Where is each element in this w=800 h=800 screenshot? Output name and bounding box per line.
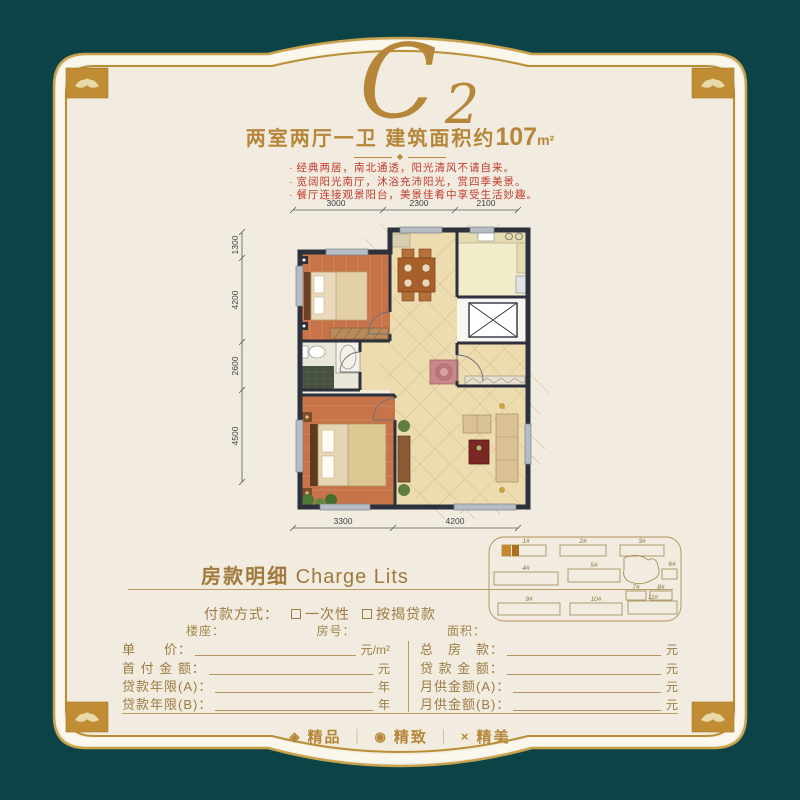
building-label: 楼座： [186, 622, 225, 639]
site-map: 1# 2# 3# 4# 5# 6# 7# 8# 9# 10# 11# [486, 530, 686, 626]
toilet [309, 346, 325, 358]
field-unit: 元 [666, 678, 678, 695]
chair [419, 249, 431, 258]
payment-label: 付款方式： [204, 604, 279, 624]
bullet-icon: · [289, 162, 294, 174]
unit-subtitle: 两室两厅一卫 建筑面积约107m² [100, 122, 700, 152]
bathroom [300, 341, 360, 390]
field-label: 月供金额(B)： [420, 694, 510, 713]
area-unit: m² [537, 132, 554, 148]
building-info-row: 楼座： 房号： 面积： [186, 622, 486, 639]
footer-word: 精品 [307, 726, 341, 747]
payment-option-mortgage: 按揭贷款 [376, 604, 436, 624]
sink [478, 232, 494, 241]
highlighted-unit [502, 545, 511, 556]
field-unit: 元/m² [361, 641, 390, 658]
footer-word: 精美 [476, 726, 510, 747]
fill-in-line[interactable] [215, 692, 373, 693]
footer-word: 精致 [394, 726, 428, 747]
bedroom-2 [300, 395, 395, 507]
checkbox-once[interactable] [291, 609, 301, 619]
form-row-unit-price: 单 价： 元/m² [122, 641, 390, 658]
checkbox-mortgage[interactable] [362, 609, 372, 619]
site-labels: 1# 2# 3# 4# 5# 6# 7# 8# 9# 10# 11# [522, 538, 676, 603]
form-row-total-price: 总 房 款： 元 [420, 641, 678, 658]
hall-rug [430, 360, 458, 384]
coffee-table [469, 440, 489, 464]
field-label: 贷 款 金 额： [420, 658, 504, 677]
dim-top-2: 2300 [410, 198, 429, 208]
field-label: 单 价： [122, 639, 192, 658]
plant [398, 484, 410, 496]
corner-ornament-top-left [66, 68, 108, 98]
bedroom-1 [300, 252, 390, 341]
payment-option-once: 一次性 [305, 604, 350, 624]
sideboard [392, 234, 410, 247]
dim-bottom-1: 3300 [334, 516, 353, 526]
field-label: 贷款年限(A)： [122, 676, 212, 695]
fill-in-line[interactable] [507, 674, 661, 675]
site-label: 3# [638, 538, 646, 545]
fill-in-line[interactable] [215, 710, 373, 711]
form-row-monthly-b: 月供金额(B)： 元 [420, 696, 678, 713]
form-row-monthly-a: 月供金额(A)： 元 [420, 678, 678, 695]
chair [402, 249, 414, 258]
corner-ornament-bottom-left [66, 702, 108, 732]
site-label: 11# [648, 594, 659, 601]
subtitle-text: 两室两厅一卫 建筑面积约 [246, 128, 496, 150]
dim-left-1: 1300 [230, 235, 240, 254]
fill-in-line[interactable] [513, 710, 661, 711]
form-row-loan-years-b: 贷款年限(B)： 年 [122, 696, 390, 713]
feature-item: ·宽阔阳光南厅，沐浴充沛阳光，赏四季美景。 [289, 176, 619, 190]
feature-text: 宽阔阳光南厅，沐浴充沛阳光，赏四季美景。 [297, 176, 527, 188]
site-label: 5# [590, 562, 598, 569]
area-label: 面积： [447, 622, 486, 639]
feature-item: ·经典两居，南北通透，阳光清风不请自来。 [289, 162, 619, 176]
fill-in-line[interactable] [195, 655, 356, 656]
title-rule [128, 589, 673, 590]
corner-ornament-top-right [692, 68, 734, 98]
site-label: 9# [525, 596, 533, 603]
field-label: 月供金额(A)： [420, 676, 510, 695]
charge-title-en: Charge Lits [289, 566, 409, 588]
fill-in-line[interactable] [513, 692, 661, 693]
form-row-down-payment: 首 付 金 额： 元 [122, 660, 390, 677]
form-row-loan-years-a: 贷款年限(A)： 年 [122, 678, 390, 695]
chair [402, 292, 414, 301]
field-unit: 元 [666, 660, 678, 677]
bed-headboard [304, 272, 311, 320]
footer-separator: ｜ [350, 726, 367, 747]
entry-closet [465, 376, 528, 385]
diamond-icon: ◆ [397, 153, 403, 161]
area-number: 107 [495, 123, 537, 151]
footer-slogan: ◈ 精品 ｜ ◉ 精致 ｜ × 精美 [250, 726, 550, 747]
wardrobe [330, 328, 388, 339]
field-label: 首 付 金 额： [122, 658, 206, 677]
highlighted-unit [512, 545, 519, 556]
cross-icon: × [461, 729, 469, 744]
site-label: 1# [522, 538, 530, 545]
field-label: 贷款年限(B)： [122, 694, 212, 713]
chair [419, 292, 431, 301]
site-label: 6# [668, 561, 676, 568]
plant [398, 420, 410, 432]
site-label: 4# [522, 565, 530, 572]
divider-line-left [354, 157, 392, 158]
feature-text: 经典两居，南北通透，阳光清风不请自来。 [297, 162, 516, 174]
dim-left-3: 2600 [230, 356, 240, 375]
elevator [457, 297, 528, 343]
room-label: 房号： [316, 622, 355, 639]
bullet-icon: · [289, 176, 294, 188]
site-buildings [494, 545, 677, 615]
charge-section-title: 房款明细 Charge Lits [150, 560, 460, 589]
field-unit: 元 [666, 641, 678, 658]
footer-separator: ｜ [436, 726, 453, 747]
bed-headboard [310, 424, 318, 486]
clubhouse [624, 555, 660, 583]
dim-left-2: 4200 [230, 290, 240, 309]
site-label: 10# [591, 596, 602, 603]
form-row-loan-amount: 贷 款 金 额： 元 [420, 660, 678, 677]
charge-title-cn: 房款明细 [201, 566, 289, 588]
lamp [499, 487, 505, 493]
divider-line-right [408, 157, 446, 158]
field-unit: 年 [378, 678, 390, 695]
field-unit: 年 [378, 696, 390, 713]
site-label: 2# [578, 538, 587, 545]
field-unit: 元 [378, 660, 390, 677]
form-column-divider [408, 641, 409, 712]
fill-in-line[interactable] [209, 674, 373, 675]
gem-icon: ◈ [289, 729, 299, 745]
dim-top-3: 2100 [477, 198, 496, 208]
lamp [499, 403, 505, 409]
dim-top-1: 3000 [327, 198, 346, 208]
dining-table [398, 258, 435, 292]
field-unit: 元 [666, 696, 678, 713]
payment-method-row: 付款方式： 一次性 按揭贷款 [204, 604, 464, 624]
dim-left-4: 4500 [230, 426, 240, 445]
subtitle-divider: ◆ [340, 152, 460, 162]
corner-ornament-bottom-right [692, 702, 734, 732]
form-bottom-rule [122, 713, 678, 714]
fill-in-line[interactable] [507, 655, 661, 656]
floor-plan: 3000 2300 2100 1300 4200 2600 4500 3300 … [230, 194, 550, 540]
dim-bottom-2: 4200 [446, 516, 465, 526]
kitchen [457, 230, 528, 297]
coin-icon: ◉ [375, 729, 386, 745]
sofa [496, 414, 518, 482]
field-label: 总 房 款： [420, 639, 504, 658]
